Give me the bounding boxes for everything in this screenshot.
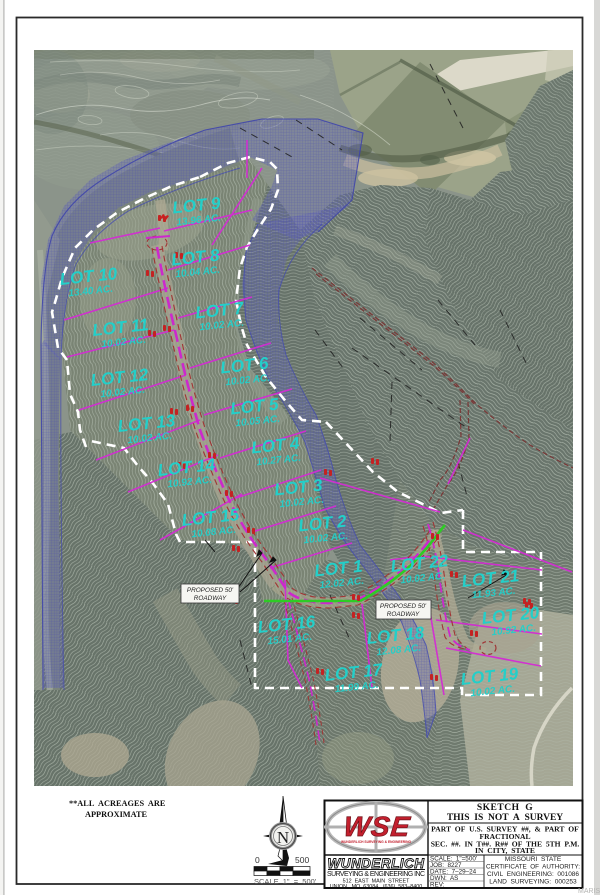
- svg-text:PROPOSED 50': PROPOSED 50': [187, 587, 234, 594]
- svg-text:LAND SURVEYING: 000253: LAND SURVEYING: 000253: [489, 879, 577, 886]
- svg-text:SURVEYING & ENGINEERING INC: SURVEYING & ENGINEERING INC: [327, 871, 425, 878]
- svg-text:0: 0: [255, 855, 260, 865]
- svg-text:APPROXIMATE: APPROXIMATE: [85, 810, 148, 819]
- svg-text:THIS IS NOT A SURVEY: THIS IS NOT A SURVEY: [447, 813, 563, 823]
- svg-text:CIVIL ENGINEERING: 001086: CIVIL ENGINEERING: 001086: [487, 871, 579, 878]
- svg-text:WSE: WSE: [342, 811, 412, 842]
- svg-text:CERTIFICATE OF AUTHORITY:: CERTIFICATE OF AUTHORITY:: [486, 864, 580, 871]
- svg-text:WUNDERLICH SURVEYING & ENGINEE: WUNDERLICH SURVEYING & ENGINEERING: [341, 840, 412, 844]
- svg-text:IN CITY, STATE: IN CITY, STATE: [475, 846, 535, 855]
- svg-text:REV:: REV:: [430, 882, 445, 889]
- svg-text:N: N: [277, 828, 289, 847]
- svg-text:PROPOSED 50': PROPOSED 50': [380, 603, 427, 610]
- svg-text:MARIS: MARIS: [578, 888, 600, 895]
- svg-text:ROADWAY: ROADWAY: [387, 611, 420, 618]
- svg-text:SKETCH G: SKETCH G: [477, 803, 533, 813]
- svg-text:ROADWAY: ROADWAY: [194, 595, 227, 602]
- svg-text:500: 500: [295, 855, 309, 865]
- svg-text:UNION, MO 63084 (636) 583: UNION, MO 63084 (636) 583–8400: [330, 884, 423, 890]
- svg-text:SCALE 1" = 500': SCALE 1" = 500': [254, 877, 317, 886]
- svg-text:MISSOURI STATE: MISSOURI STATE: [505, 856, 562, 863]
- svg-text:**ALL ACREAGES ARE: **ALL ACREAGES ARE: [69, 799, 166, 808]
- svg-text:WUNDERLICH: WUNDERLICH: [328, 856, 425, 871]
